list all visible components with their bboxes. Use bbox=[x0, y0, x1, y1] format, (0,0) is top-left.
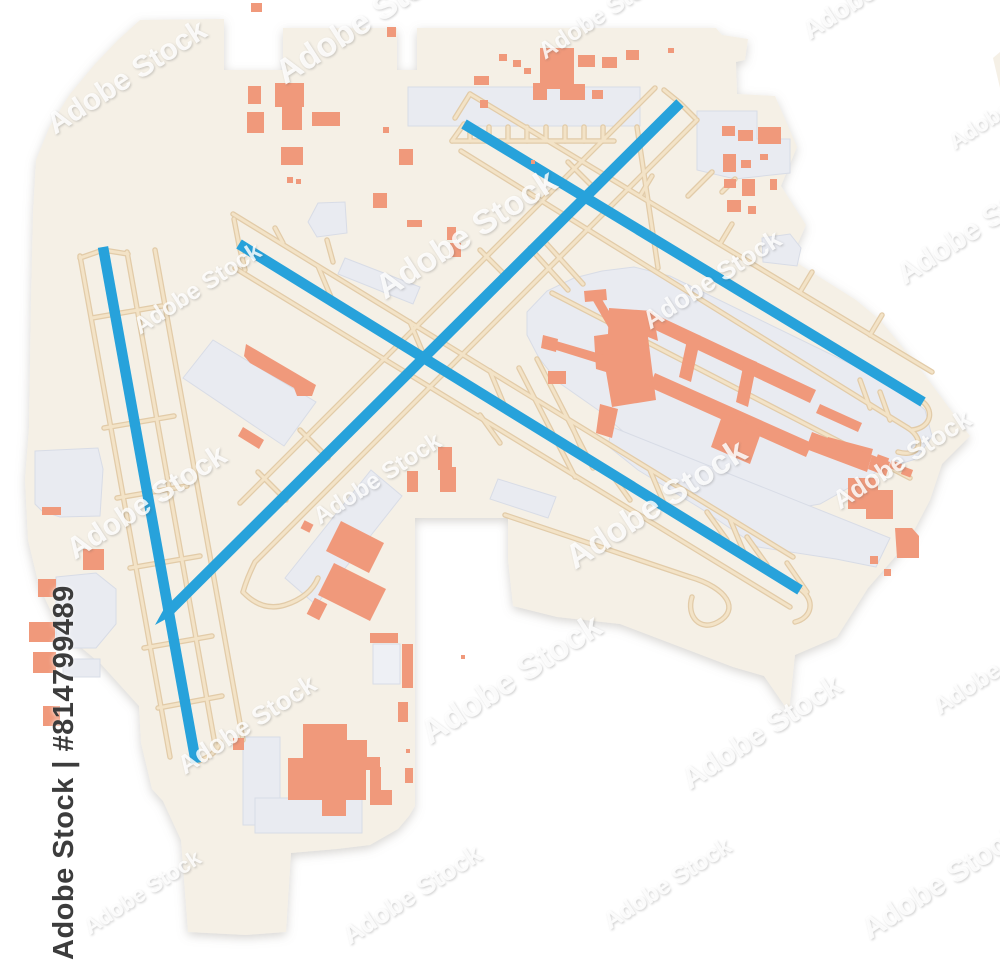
building bbox=[592, 90, 603, 99]
building bbox=[870, 556, 878, 564]
building bbox=[602, 57, 617, 68]
building bbox=[758, 127, 781, 144]
building bbox=[884, 569, 891, 576]
building bbox=[480, 100, 488, 108]
building bbox=[248, 86, 261, 104]
airport-ground-fragment bbox=[993, 52, 1000, 88]
building bbox=[370, 633, 398, 643]
building bbox=[723, 154, 736, 172]
watermark-tile: Adobe Stock bbox=[797, 0, 947, 45]
building bbox=[406, 749, 410, 753]
stock-photo-frame: Adobe StockAdobe StockAdobe StockAdobe S… bbox=[0, 0, 1000, 964]
building bbox=[584, 289, 607, 302]
building bbox=[282, 105, 302, 130]
watermark-tile: Adobe Stock bbox=[414, 607, 609, 752]
building bbox=[722, 126, 735, 136]
building bbox=[398, 702, 408, 722]
building bbox=[578, 55, 595, 67]
building bbox=[748, 206, 756, 214]
building bbox=[251, 3, 262, 12]
apron bbox=[35, 448, 103, 517]
building bbox=[407, 220, 422, 227]
building bbox=[760, 154, 768, 160]
building bbox=[741, 160, 751, 168]
watermark-stock-id: Adobe Stock | #814799489 bbox=[48, 585, 81, 960]
building bbox=[626, 50, 639, 60]
building bbox=[668, 48, 674, 53]
watermark-tile: Adobe Stock bbox=[676, 668, 848, 796]
building bbox=[738, 130, 753, 141]
apron-light bbox=[373, 644, 400, 684]
building bbox=[312, 112, 340, 126]
building bbox=[296, 179, 301, 184]
building bbox=[405, 768, 413, 783]
building bbox=[533, 83, 547, 100]
building bbox=[42, 507, 61, 515]
building bbox=[402, 644, 413, 688]
building bbox=[513, 60, 521, 67]
building bbox=[727, 200, 741, 212]
building bbox=[474, 76, 489, 85]
building bbox=[387, 27, 396, 37]
building bbox=[281, 147, 303, 165]
building bbox=[770, 179, 777, 190]
watermark-tile: Adobe Stock bbox=[856, 818, 1000, 946]
building bbox=[383, 127, 389, 133]
building bbox=[399, 149, 413, 165]
watermark-tile: Adobe Stock bbox=[891, 163, 1000, 291]
building bbox=[742, 179, 755, 196]
building bbox=[895, 528, 919, 558]
watermark-tile: Adobe Stock bbox=[337, 838, 487, 950]
watermark-tile: Adobe Stock bbox=[929, 617, 1000, 720]
building bbox=[247, 112, 264, 133]
building bbox=[548, 371, 566, 384]
building bbox=[287, 177, 293, 183]
airport-map-image: Adobe StockAdobe StockAdobe StockAdobe S… bbox=[0, 0, 1000, 964]
building bbox=[499, 54, 507, 61]
apron bbox=[408, 87, 640, 126]
watermark-tile: Adobe Stock bbox=[599, 832, 737, 935]
building bbox=[724, 179, 736, 188]
building bbox=[373, 193, 387, 208]
building bbox=[524, 68, 531, 74]
building bbox=[560, 84, 585, 100]
building bbox=[531, 160, 535, 164]
watermark-tile: Adobe Stock bbox=[944, 60, 1000, 155]
building bbox=[440, 467, 456, 492]
building bbox=[461, 655, 465, 659]
